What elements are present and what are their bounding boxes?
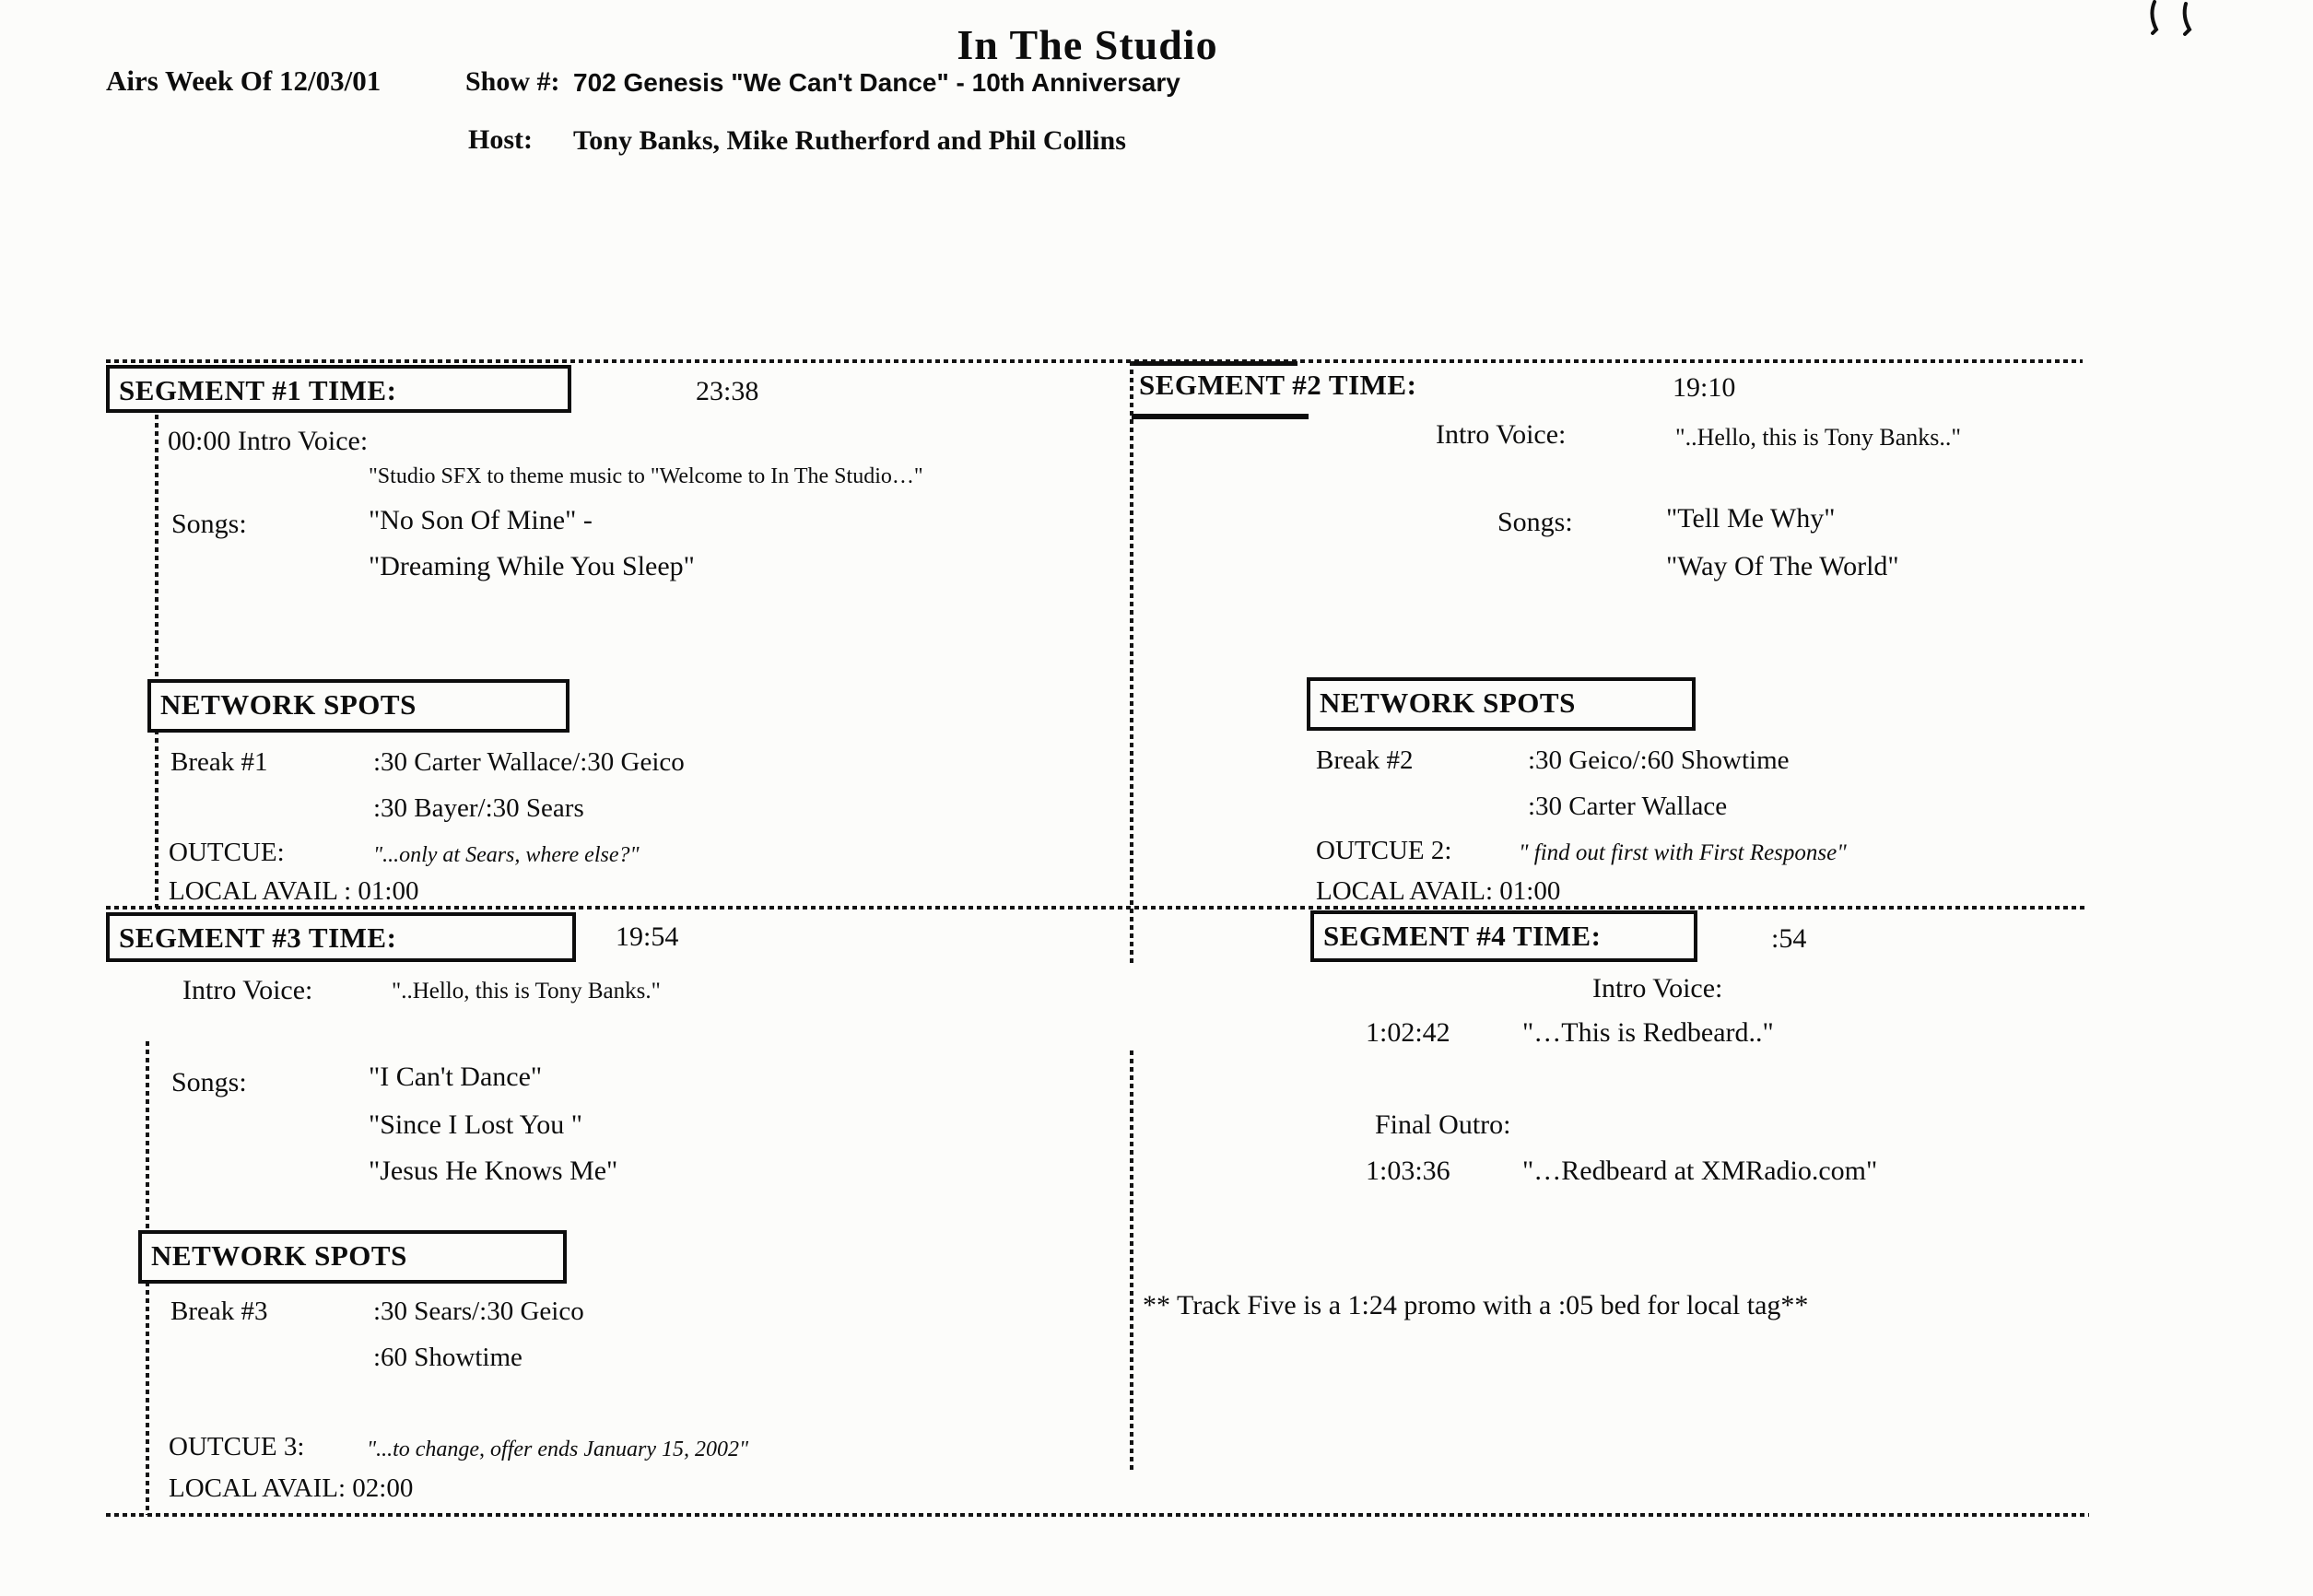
segment4-outro-label: Final Outro:	[1375, 1109, 1511, 1140]
spots2-break-line: :30 Carter Wallace	[1528, 792, 1727, 822]
segment4-header-box: SEGMENT #4 TIME:	[1310, 910, 1697, 962]
spots2-break-label: Break #2	[1316, 746, 1414, 776]
spots2-outcue-label: OUTCUE 2:	[1316, 837, 1451, 866]
segment1-intro-line: 00:00 Intro Voice:	[168, 426, 368, 456]
network-spots3-box: NETWORK SPOTS	[138, 1230, 567, 1284]
segment3-song: "Jesus He Knows Me"	[369, 1156, 617, 1186]
segment1-song: "No Son Of Mine" -	[369, 505, 593, 535]
spots3-outcue-label: OUTCUE 3:	[169, 1433, 304, 1462]
segment2-song: "Way Of The World"	[1666, 551, 1899, 581]
divider-top	[106, 359, 2083, 363]
segment2-header-underline	[1132, 414, 1309, 419]
segment4-outro-quote: "…Redbeard at XMRadio.com"	[1522, 1156, 1877, 1186]
segment1-intro-quote: "Studio SFX to theme music to "Welcome t…	[369, 464, 923, 489]
segment1-song: "Dreaming While You Sleep"	[369, 551, 695, 581]
segment4-time: :54	[1771, 923, 1806, 954]
divider-bottom	[106, 1513, 2089, 1517]
segment2-intro-label: Intro Voice:	[1436, 419, 1566, 450]
spots1-break-label: Break #1	[170, 748, 268, 778]
network-spots2-box: NETWORK SPOTS	[1307, 677, 1696, 731]
track-five-note: ** Track Five is a 1:24 promo with a :05…	[1143, 1290, 1808, 1320]
segment4-intro-label: Intro Voice:	[1592, 973, 1722, 1003]
spots3-break-label: Break #3	[170, 1297, 268, 1327]
network-spots1-header: NETWORK SPOTS	[160, 688, 417, 721]
segment4-outro-time: 1:03:36	[1366, 1156, 1450, 1186]
segment2-song: "Tell Me Why"	[1666, 503, 1835, 534]
segment4-intro-quote: "…This is Redbeard.."	[1522, 1017, 1774, 1048]
rundown-sheet: In The Studio Airs Week Of 12/03/01 Show…	[0, 0, 2313, 1596]
segment3-song: "I Can't Dance"	[369, 1062, 542, 1092]
show-number-value: 702 Genesis "We Can't Dance" - 10th Anni…	[573, 68, 1180, 98]
divider-vertical-upper	[1130, 361, 1133, 965]
segment4-header: SEGMENT #4 TIME:	[1323, 920, 1601, 952]
host-label: Host:	[468, 124, 533, 155]
segment3-header-box: SEGMENT #3 TIME:	[106, 912, 576, 962]
segment3-time: 19:54	[616, 921, 678, 952]
spots1-outcue-quote: "...only at Sears, where else?"	[373, 843, 640, 868]
left-border-upper	[155, 415, 159, 908]
segment1-songs-label: Songs:	[171, 509, 247, 539]
spots3-break-line: :60 Showtime	[373, 1344, 522, 1373]
segment1-header-box: SEGMENT #1 TIME:	[106, 365, 571, 413]
airs-week-label: Airs Week Of 12/03/01	[106, 65, 381, 98]
segment1-time: 23:38	[696, 376, 758, 406]
spots3-break-line: :30 Sears/:30 Geico	[373, 1297, 584, 1327]
network-spots2-header: NETWORK SPOTS	[1320, 687, 1576, 719]
spots1-break-line: :30 Carter Wallace/:30 Geico	[373, 748, 685, 778]
network-spots1-box: NETWORK SPOTS	[147, 679, 569, 733]
divider-vertical-lower	[1130, 1050, 1133, 1473]
segment2-time: 19:10	[1673, 372, 1735, 403]
segment2-songs-label: Songs:	[1497, 507, 1573, 537]
segment3-songs-label: Songs:	[171, 1067, 247, 1097]
host-value: Tony Banks, Mike Rutherford and Phil Col…	[573, 125, 1126, 156]
spots2-local-avail: LOCAL AVAIL: 01:00	[1316, 877, 1560, 907]
segment1-header: SEGMENT #1 TIME:	[119, 374, 396, 406]
spots1-break-line: :30 Bayer/:30 Sears	[373, 794, 584, 824]
segment2-header: SEGMENT #2 TIME:	[1139, 369, 1416, 402]
segment3-intro-label: Intro Voice:	[182, 975, 312, 1005]
show-number-label: Show #:	[465, 66, 560, 97]
spots3-local-avail: LOCAL AVAIL: 02:00	[169, 1474, 413, 1504]
spots1-local-avail: LOCAL AVAIL : 01:00	[169, 877, 419, 907]
segment3-intro-quote: "..Hello, this is Tony Banks."	[392, 979, 661, 1004]
spots3-outcue-quote: "...to change, offer ends January 15, 20…	[367, 1438, 748, 1462]
page-title: In The Studio	[0, 20, 2175, 69]
segment3-song: "Since I Lost You "	[369, 1109, 582, 1140]
segment2-intro-quote: "..Hello, this is Tony Banks.."	[1675, 424, 1961, 452]
spots2-break-line: :30 Geico/:60 Showtime	[1528, 746, 1790, 776]
segment2-header-topline	[1133, 361, 1297, 366]
segment4-intro-time: 1:02:42	[1366, 1017, 1450, 1048]
spots1-outcue-label: OUTCUE:	[169, 839, 285, 868]
segment3-header: SEGMENT #3 TIME:	[119, 921, 396, 954]
network-spots3-header: NETWORK SPOTS	[151, 1239, 407, 1272]
spots2-outcue-quote: " find out first with First Response"	[1519, 840, 1847, 866]
